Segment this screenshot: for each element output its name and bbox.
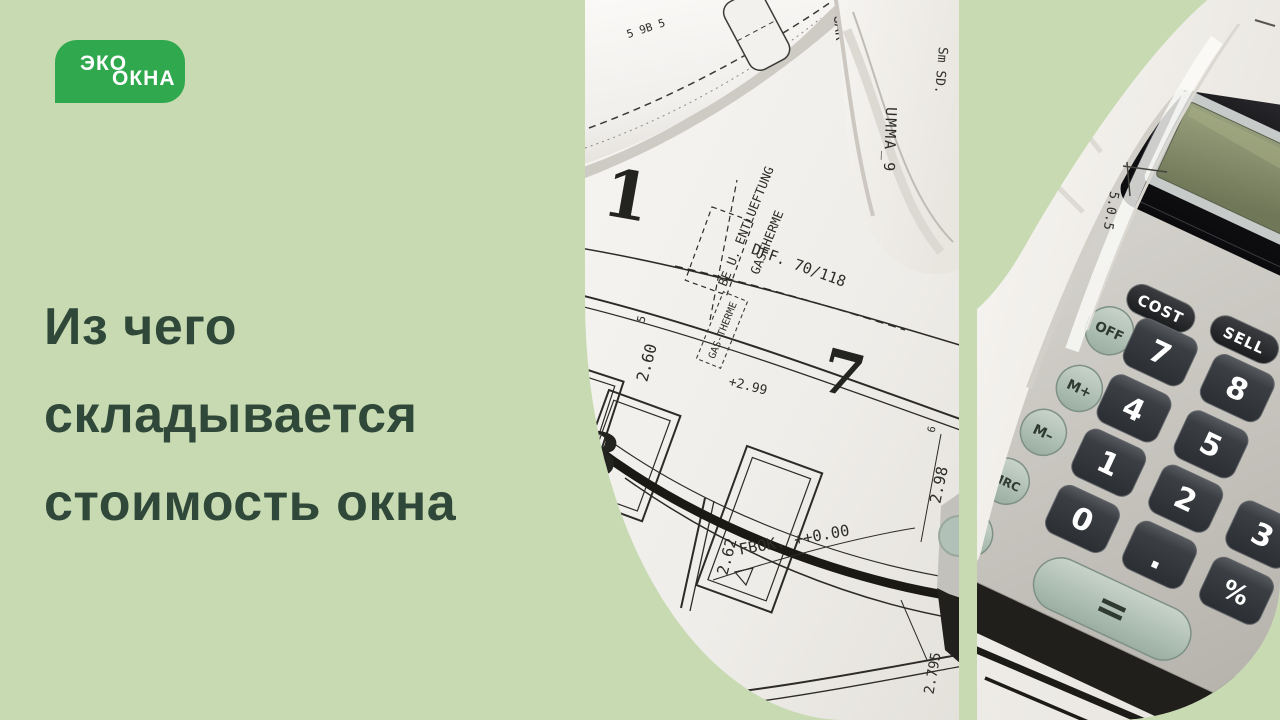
calculator-photo-right: COST SELL OFF M+ M– MRC bbox=[977, 0, 1280, 720]
title-line-3: стоимость окна bbox=[44, 459, 564, 547]
roll-summa-label: UMMA_9 bbox=[880, 107, 900, 174]
video-thumbnail: ЭКО ОКНА Из чего складывается стоимость … bbox=[0, 0, 1280, 720]
blueprint-photo-left: 5 9B 5 GAR UMMA_9 Sm SD. bbox=[585, 0, 959, 720]
title-line-2: складывается bbox=[44, 371, 564, 459]
title-line-1: Из чего bbox=[44, 283, 564, 371]
page-title: Из чего складывается стоимость окна bbox=[44, 283, 564, 547]
brand-logo: ЭКО ОКНА bbox=[55, 40, 185, 103]
logo-text-okna: ОКНА bbox=[112, 68, 175, 89]
